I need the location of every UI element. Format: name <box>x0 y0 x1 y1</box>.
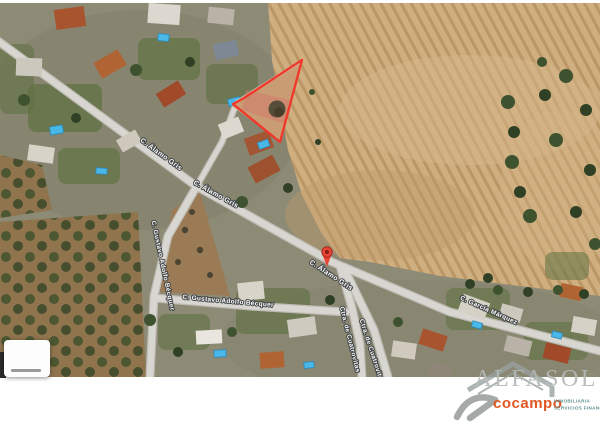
satellite-map[interactable]: C. Álamo Gris C. Álamo Gris C. Álamo Gri… <box>0 3 600 377</box>
tree <box>514 186 526 198</box>
tree <box>325 295 335 305</box>
pool <box>214 350 226 358</box>
tree <box>197 247 203 253</box>
tree <box>173 347 183 357</box>
tree <box>539 89 551 101</box>
tree <box>523 287 533 297</box>
logo-tagline-line1: INMOBILIARIA <box>554 399 590 404</box>
tree <box>579 289 589 299</box>
pool <box>96 168 107 175</box>
tree <box>71 113 81 123</box>
tree <box>185 57 195 67</box>
tree <box>207 272 213 278</box>
tree <box>393 317 403 327</box>
house-roof <box>259 351 284 369</box>
pool <box>49 125 63 135</box>
field-patch <box>285 170 475 260</box>
tree <box>175 259 181 265</box>
tree <box>537 57 547 67</box>
tree <box>18 94 30 106</box>
map-pin-dot <box>325 250 329 254</box>
tree <box>227 327 237 337</box>
tree <box>559 69 573 83</box>
tree <box>465 279 475 289</box>
tree <box>493 285 503 295</box>
logo-subbrand-name: cocampo <box>493 395 562 412</box>
tree <box>144 314 156 326</box>
map-canvas[interactable]: C. Álamo Gris C. Álamo Gris C. Álamo Gri… <box>0 3 600 377</box>
tree <box>309 89 315 95</box>
house-roof <box>196 329 223 344</box>
map-inset-thumbnail[interactable] <box>4 340 50 377</box>
tree <box>549 133 563 147</box>
tree <box>182 227 188 233</box>
inset-caption-bar <box>11 369 41 372</box>
house-roof <box>147 3 180 25</box>
logo-tagline-line2: SERVICIOS FINANCIEROS <box>554 406 600 411</box>
tree <box>523 209 537 223</box>
tree <box>483 273 493 283</box>
tree <box>553 285 563 295</box>
tree <box>189 209 195 215</box>
house-roof <box>54 6 86 30</box>
logo-swoosh <box>470 400 495 418</box>
tree <box>130 64 142 76</box>
house-roof <box>391 340 417 359</box>
tree <box>505 155 519 169</box>
tree <box>570 206 582 218</box>
screenshot-stage: C. Álamo Gris C. Álamo Gris C. Álamo Gri… <box>0 0 600 434</box>
house-roof <box>207 7 235 26</box>
house-roof <box>16 58 43 77</box>
tree <box>315 139 321 145</box>
lawn-patch <box>545 252 589 280</box>
lawn-patch <box>58 148 120 184</box>
pool <box>304 361 315 368</box>
tree <box>508 126 520 138</box>
tree <box>283 183 293 193</box>
logo-brand-name: ALFASOL <box>474 366 598 392</box>
pool <box>158 33 170 41</box>
agency-logo: ALFASOL cocampo INMOBILIARIA SERVICIOS F… <box>448 356 600 434</box>
tree <box>584 164 596 176</box>
tree <box>501 95 515 109</box>
tree <box>580 104 592 116</box>
